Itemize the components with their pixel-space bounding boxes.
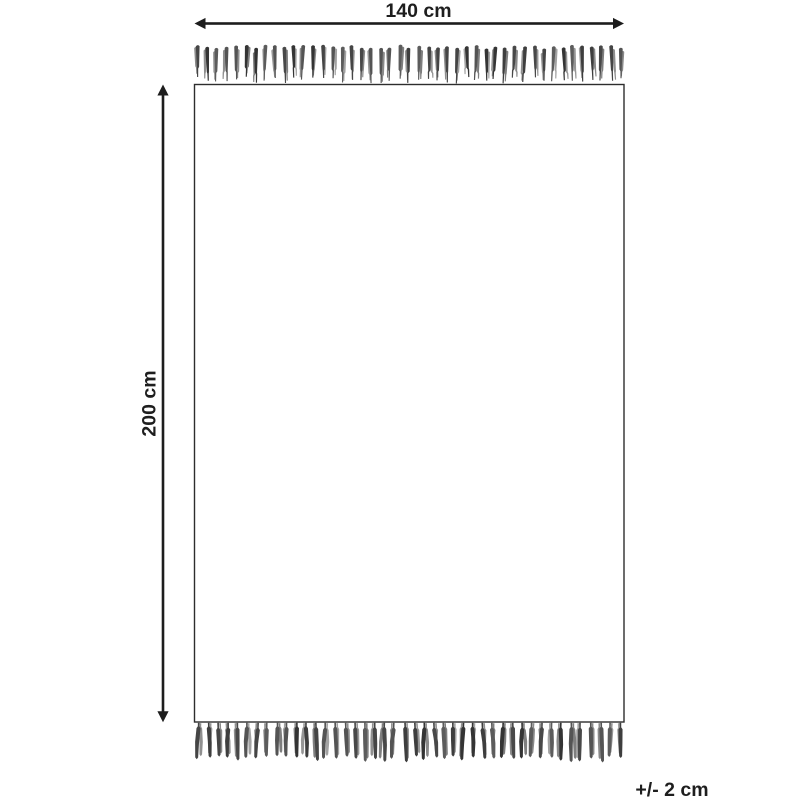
svg-text:200 cm: 200 cm	[139, 370, 161, 436]
svg-text:+/- 2 cm: +/- 2 cm	[635, 779, 708, 800]
svg-text:140 cm: 140 cm	[385, 0, 451, 22]
